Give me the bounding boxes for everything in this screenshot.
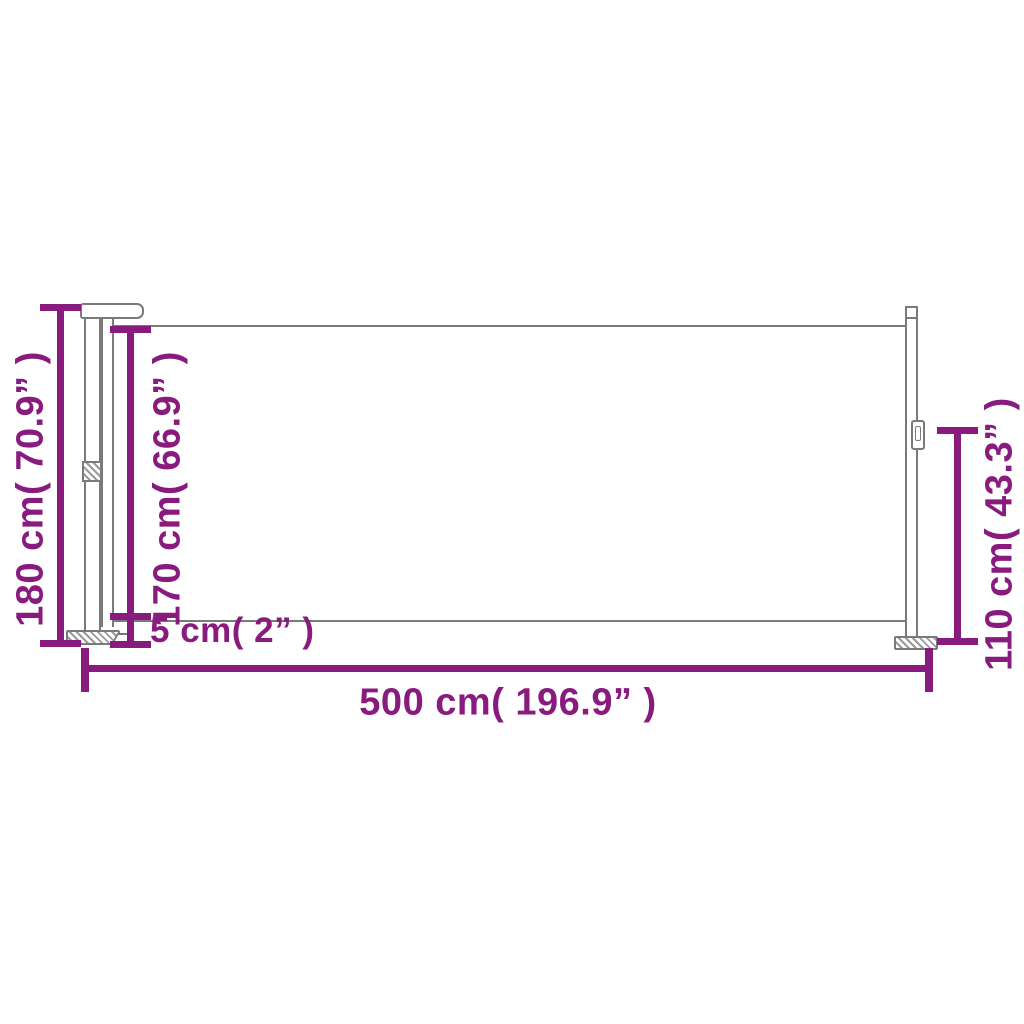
wall-bracket (82, 461, 102, 482)
dim-end-post-height-cap-top (937, 427, 978, 434)
dim-fabric-height-label: 170 cm( 66.9” ) (147, 351, 190, 627)
dim-ground-gap-cap-bottom (110, 641, 151, 648)
cassette-roller (101, 315, 114, 627)
dim-end-post-height-line (954, 430, 961, 642)
dim-total-length-tick-right (925, 648, 933, 692)
dim-total-length-line (84, 665, 933, 672)
dim-fabric-height-cap-top (110, 326, 151, 333)
end-post (905, 306, 918, 644)
dim-total-height-cap-bottom (40, 640, 81, 647)
dim-total-height-cap-top (40, 304, 81, 311)
pull-handle (911, 420, 925, 450)
pull-handle-latch (915, 426, 921, 441)
dim-fabric-height-cap-bottom (110, 613, 151, 620)
dim-total-height-label: 180 cm( 70.9” ) (10, 351, 53, 627)
cassette-top-cap (80, 303, 144, 319)
dim-total-height-line (57, 307, 64, 644)
awning-fabric (112, 325, 907, 622)
dim-fabric-height-line (127, 328, 134, 620)
dim-end-post-height-cap-bottom (937, 638, 978, 645)
dim-end-post-height-label: 110 cm( 43.3” ) (979, 397, 1022, 671)
dim-total-length-tick-left (81, 648, 89, 692)
dim-total-length-label: 500 cm( 196.9” ) (359, 682, 656, 725)
dim-ground-gap-label: 5 cm( 2” ) (150, 611, 315, 651)
diagram-canvas: 180 cm( 70.9” ) 170 cm( 66.9” ) 5 cm( 2”… (0, 0, 1024, 1024)
end-post-cap (906, 317, 917, 319)
